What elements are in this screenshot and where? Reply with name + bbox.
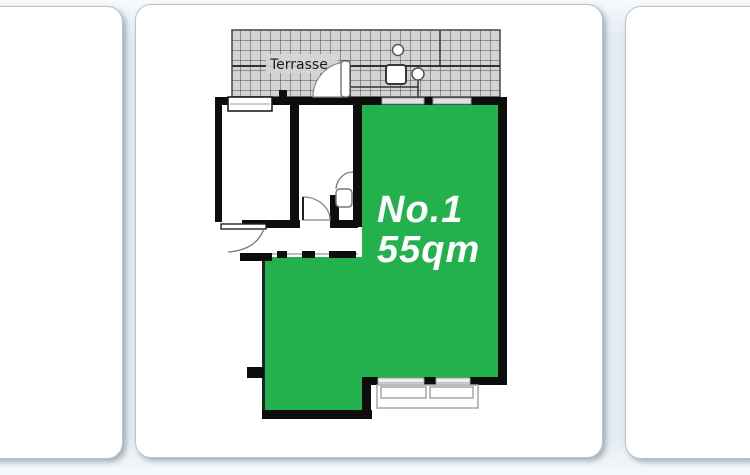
partition [272,251,358,258]
terrace-label: Terrasse [269,57,328,73]
wall-segment [290,105,299,222]
window [378,378,424,383]
wall-segment [470,377,507,385]
wall-stub [247,367,264,378]
room-door-leaf [336,189,352,207]
unit-number-label: No.1 [377,189,463,231]
window [382,98,424,104]
terrace-stool-icon [412,68,424,80]
terrace-table-icon [386,65,406,84]
window [433,98,471,104]
room-door-swing [336,172,353,189]
terrace-stool-icon [393,45,404,56]
carousel: Terrasse [0,0,750,475]
window-sill [381,387,426,398]
wall-segment [262,410,372,419]
wall-segment [424,377,436,385]
terrace-door-leaf [341,61,350,97]
floor-plan: Terrasse [0,0,750,475]
unit-area-label: 55qm [377,229,480,271]
wall-segment [215,97,222,222]
wall-segment [498,97,507,385]
window [436,378,470,383]
wall-segment [277,251,287,258]
terrace-area: Terrasse [232,30,500,97]
wall-segment [279,90,287,97]
wall-segment [240,253,272,261]
wall-segment [302,251,315,258]
wall-segment [353,105,362,227]
entry-door-leaf [221,224,266,229]
entry-door-swing [228,229,264,252]
wall-segment [329,251,356,258]
wall-segment [362,377,371,414]
wall-segment [262,257,265,411]
window-sill [430,387,473,398]
hall-door-swing [303,197,330,220]
